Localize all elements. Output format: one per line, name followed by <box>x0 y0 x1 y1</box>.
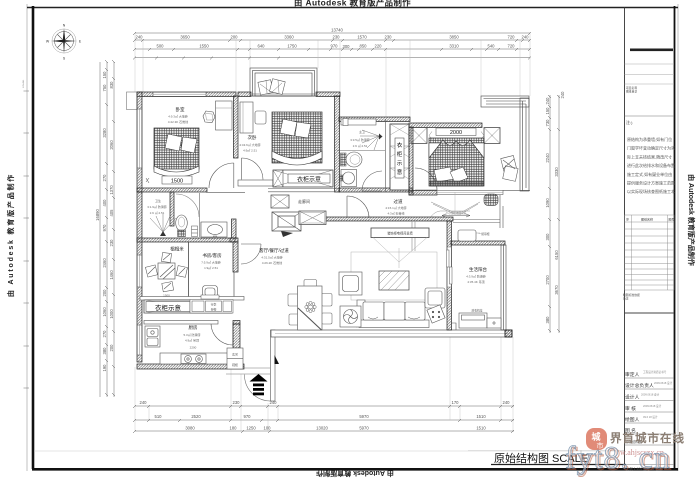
svg-text:原结构为承重墙;如有门位: 原结构为承重墙;如有门位 <box>627 136 672 142</box>
svg-text:2009.0618 设计: 2009.0618 设计 <box>641 393 660 397</box>
svg-text:由 Autodesk 教育版产品制作: 由 Autodesk 教育版产品制作 <box>294 0 411 7</box>
svg-text:4:26.2K 石膏线: 4:26.2K 石膏线 <box>262 260 282 265</box>
svg-text:230: 230 <box>385 35 393 40</box>
svg-text:120x841: 120x841 <box>23 79 25 88</box>
svg-text:230: 230 <box>109 239 114 247</box>
svg-text:备注: 备注 <box>623 297 629 301</box>
svg-text:2009.0618 设计: 2009.0618 设计 <box>654 381 673 385</box>
svg-text:09.6 18 设计: 09.6 18 设计 <box>643 415 658 419</box>
svg-text:405: 405 <box>109 209 114 217</box>
svg-text:意: 意 <box>397 168 403 176</box>
svg-text:1250: 1250 <box>246 426 256 431</box>
svg-text:300: 300 <box>343 44 351 49</box>
svg-text:1:9㎡ 2.51: 1:9㎡ 2.51 <box>204 265 218 270</box>
svg-text:3850: 3850 <box>449 35 459 40</box>
svg-text:衣柜示意: 衣柜示意 <box>297 176 321 184</box>
svg-text:2200: 2200 <box>190 346 197 350</box>
svg-text:工程设计资质证书号: 工程设计资质证书号 <box>643 370 667 374</box>
svg-text:540: 540 <box>488 44 496 49</box>
svg-text:300: 300 <box>545 233 550 241</box>
svg-text:序: 序 <box>626 217 629 222</box>
svg-text:510: 510 <box>155 414 163 419</box>
svg-text:400: 400 <box>102 199 107 207</box>
svg-text:180: 180 <box>230 426 238 431</box>
svg-text:13020: 13020 <box>316 426 328 431</box>
svg-text:380: 380 <box>545 316 550 324</box>
svg-text:图纸名称: 图纸名称 <box>641 217 653 222</box>
svg-text:鞋柜: 鞋柜 <box>232 362 238 367</box>
svg-text:720: 720 <box>508 44 516 49</box>
svg-text:200: 200 <box>231 35 239 40</box>
svg-text:2000: 2000 <box>450 130 462 136</box>
svg-text:1000: 1000 <box>109 309 114 319</box>
svg-text:240: 240 <box>545 97 550 105</box>
svg-text:100: 100 <box>264 426 272 431</box>
svg-text:240: 240 <box>522 35 530 40</box>
svg-text:行李: 行李 <box>211 303 217 307</box>
svg-text:衣柜示意: 衣柜示意 <box>155 303 182 312</box>
svg-text:提供服务设计方案施工范围: 提供服务设计方案施工范围 <box>627 180 675 186</box>
svg-text:3310: 3310 <box>449 44 459 49</box>
svg-text:640: 640 <box>258 44 266 49</box>
svg-text:杂物: 杂物 <box>211 308 217 312</box>
svg-text:170: 170 <box>452 400 460 405</box>
svg-text:榻榻米: 榻榻米 <box>170 246 184 253</box>
svg-text:3080: 3080 <box>185 426 195 431</box>
svg-text:200: 200 <box>109 344 114 352</box>
svg-text:进行此次给排水和设备布置: 进行此次给排水和设备布置 <box>627 162 675 168</box>
svg-text:240: 240 <box>136 35 144 40</box>
svg-text:240: 240 <box>560 91 565 99</box>
svg-text:洗衣机位: 洗衣机位 <box>471 309 482 313</box>
svg-text:4:3㎡ 石膏线: 4:3㎡ 石膏线 <box>387 211 404 216</box>
svg-text:5.3㎡ 防滑砖: 5.3㎡ 防滑砖 <box>183 332 200 337</box>
svg-text:fyt8. cn: fyt8. cn <box>565 439 671 475</box>
svg-text:4:31.5㎡ 大地砖: 4:31.5㎡ 大地砖 <box>261 255 282 260</box>
svg-text:1:9 ㎡ 2.51: 1:9 ㎡ 2.51 <box>353 143 368 148</box>
svg-text:3330: 3330 <box>554 167 559 177</box>
svg-text:4:35.4K 吊顶: 4:35.4K 吊顶 <box>467 280 484 284</box>
svg-text:150: 150 <box>545 107 550 115</box>
svg-text:2700: 2700 <box>545 275 550 285</box>
svg-text:客厅/餐厅/过道: 客厅/餐厅/过道 <box>259 247 289 254</box>
svg-text:次卧: 次卧 <box>248 134 257 141</box>
svg-text:830: 830 <box>109 81 114 89</box>
svg-text:图纸目录: 图纸目录 <box>626 90 637 94</box>
svg-text:16890: 16890 <box>95 209 100 221</box>
svg-text:4.9㎡ 吊顶: 4.9㎡ 吊顶 <box>185 338 199 343</box>
svg-text:4:9.3㎡ 大地砖: 4:9.3㎡ 大地砖 <box>168 114 188 119</box>
svg-text:270: 270 <box>102 330 107 338</box>
svg-text:由 Autodesk 教育版产品制作: 由 Autodesk 教育版产品制作 <box>6 173 15 297</box>
svg-text:书房/客房: 书房/客房 <box>202 252 222 259</box>
svg-text:玄关: 玄关 <box>232 352 238 357</box>
svg-text:绘图人: 绘图人 <box>625 416 640 423</box>
svg-text:柜: 柜 <box>397 150 403 158</box>
svg-text:1750: 1750 <box>287 44 297 49</box>
svg-text:5970: 5970 <box>359 414 369 419</box>
svg-text:门窗学坏变动确定尺寸为实: 门窗学坏变动确定尺寸为实 <box>627 145 675 151</box>
svg-text:际上支夫核结果,随改尺寸: 际上支夫核结果,随改尺寸 <box>627 153 672 159</box>
svg-text:图号: 图号 <box>669 217 675 222</box>
svg-text:3:1.9㎡ 防滑砖: 3:1.9㎡ 防滑砖 <box>147 204 167 209</box>
svg-text:卫生: 卫生 <box>155 198 161 203</box>
svg-text:2009.0618 设计: 2009.0618 设计 <box>643 404 662 408</box>
svg-text:2460: 2460 <box>102 258 107 268</box>
svg-text:2520: 2520 <box>191 414 201 419</box>
svg-text:230: 230 <box>333 35 341 40</box>
svg-text:以实际现场核查图纸施工本: 以实际现场核查图纸施工本 <box>627 188 675 194</box>
svg-text:主卫: 主卫 <box>359 129 365 134</box>
svg-text:380: 380 <box>102 347 107 355</box>
svg-text:卧室: 卧室 <box>176 106 185 113</box>
svg-text:4:43.6㎡ 大地砖: 4:43.6㎡ 大地砖 <box>239 142 260 147</box>
svg-text:1500: 1500 <box>163 294 170 298</box>
svg-text:3360: 3360 <box>284 35 294 40</box>
svg-text:施工定式,如有疑业单位由: 施工定式,如有疑业单位由 <box>627 171 672 177</box>
svg-text:注:): 注:) <box>626 119 633 125</box>
svg-text:240: 240 <box>503 400 511 405</box>
svg-text:设计总负责人: 设计总负责人 <box>625 382 654 389</box>
svg-text:970: 970 <box>244 414 252 419</box>
svg-text:3670: 3670 <box>554 285 559 295</box>
svg-text:750: 750 <box>102 84 107 92</box>
svg-text:4:42.3K 石膏线: 4:42.3K 石膏线 <box>168 119 188 124</box>
svg-text:500: 500 <box>157 44 165 49</box>
svg-text:示: 示 <box>397 160 403 167</box>
svg-text:1570: 1570 <box>357 35 367 40</box>
svg-text:1550: 1550 <box>199 44 209 49</box>
svg-text:4:3.9㎡ 防滑砖: 4:3.9㎡ 防滑砖 <box>466 274 486 279</box>
svg-text:由 Autodesk 教育版产品制作: 由 Autodesk 教育版产品制作 <box>687 174 696 266</box>
svg-text:审定人: 审定人 <box>625 371 640 378</box>
svg-text:1510: 1510 <box>476 414 486 419</box>
svg-text:7:5.9㎡ 大地砖: 7:5.9㎡ 大地砖 <box>201 260 221 265</box>
svg-text:装饰柜电视背景墙: 装饰柜电视背景墙 <box>387 231 413 236</box>
svg-text:厨房: 厨房 <box>189 324 198 331</box>
svg-text:13740: 13740 <box>331 28 343 33</box>
svg-text:设计人: 设计人 <box>625 394 640 401</box>
svg-text:190: 190 <box>102 364 107 372</box>
svg-text:1460: 1460 <box>109 270 114 280</box>
svg-text:3650: 3650 <box>180 35 190 40</box>
svg-text:1500: 1500 <box>171 179 183 185</box>
svg-text:2060: 2060 <box>109 140 114 150</box>
svg-text:1060: 1060 <box>102 307 107 317</box>
svg-text:一组吊柜: 一组吊柜 <box>478 232 489 236</box>
svg-text:1090: 1090 <box>545 198 550 208</box>
svg-text:6150: 6150 <box>554 250 559 260</box>
svg-text:由 Autodesk 教育版制作: 由 Autodesk 教育版制作 <box>316 469 394 478</box>
svg-text:270: 270 <box>102 174 107 182</box>
svg-text:衣: 衣 <box>397 141 403 149</box>
svg-text:5970: 5970 <box>359 426 369 431</box>
svg-text:1510: 1510 <box>476 426 486 431</box>
svg-text:220: 220 <box>375 44 383 49</box>
svg-text:1370: 1370 <box>109 185 114 195</box>
svg-text:200: 200 <box>102 289 107 297</box>
svg-text:生活阳台: 生活阳台 <box>469 266 487 273</box>
svg-text:走廊间: 走廊间 <box>298 198 310 204</box>
svg-text:2240: 2240 <box>545 153 550 163</box>
svg-text:审 核: 审 核 <box>625 405 636 412</box>
svg-text:3280: 3280 <box>102 128 107 138</box>
svg-text:240: 240 <box>140 400 148 405</box>
svg-text:1:9 ㎡ 2.51: 1:9 ㎡ 2.51 <box>150 210 165 215</box>
svg-text:230: 230 <box>233 400 241 405</box>
svg-text:730: 730 <box>545 119 550 127</box>
svg-text:4:9㎡ 2.51: 4:9㎡ 2.51 <box>243 148 257 153</box>
svg-text:970: 970 <box>102 224 107 232</box>
svg-text:850: 850 <box>360 44 368 49</box>
svg-text:过道: 过道 <box>394 198 403 205</box>
svg-text:720: 720 <box>508 35 516 40</box>
svg-text:150: 150 <box>102 71 107 79</box>
svg-text:小心台阶地面高差: 小心台阶地面高差 <box>446 211 467 215</box>
svg-text:4:15.1㎡ 大地砖: 4:15.1㎡ 大地砖 <box>385 205 406 210</box>
svg-text:970: 970 <box>331 44 339 49</box>
